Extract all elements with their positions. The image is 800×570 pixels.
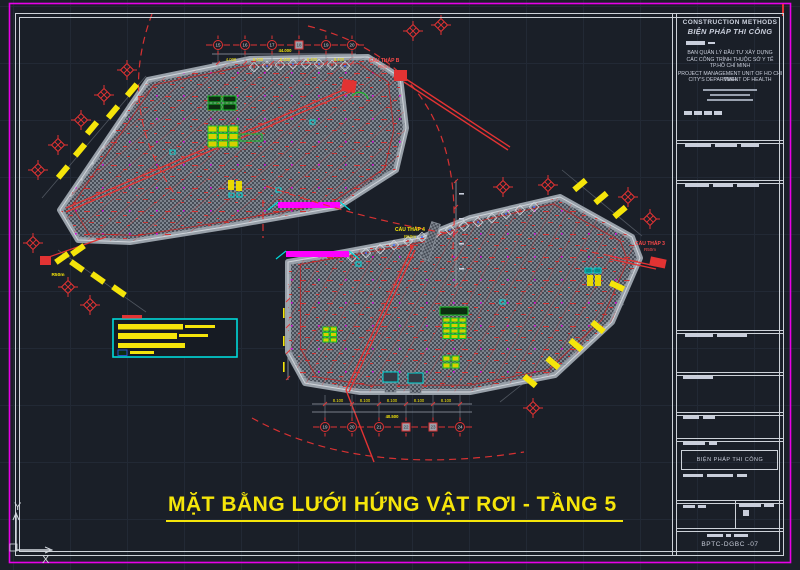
titleblock-divider [677, 528, 783, 532]
lower-building-slab [288, 197, 640, 462]
address-text-bar [707, 99, 753, 101]
svg-text:8.100: 8.100 [333, 398, 344, 403]
svg-text:15: 15 [215, 43, 221, 48]
titleblock-text-bar [707, 534, 723, 537]
upper-building-slab [60, 57, 406, 242]
logo-bar [708, 42, 715, 44]
svg-text:8.400: 8.400 [253, 57, 264, 62]
svg-text:20: 20 [349, 425, 355, 430]
company-name-vi: BIỆN PHÁP THI CÔNG [677, 27, 783, 36]
address-text-bar [703, 89, 757, 91]
svg-text:8.100: 8.100 [387, 398, 398, 403]
titleblock-text-bar [685, 144, 711, 147]
grid-dimensions-top: 4.000 8.400 8.400 8.400 8.400 44.000 15 … [206, 36, 364, 67]
owner-line: CÁC CÔNG TRÌNH THUỘC SỞ Y TẾ [677, 57, 783, 63]
svg-text:44.000: 44.000 [279, 48, 292, 53]
titleblock-text-bar [713, 184, 733, 187]
titleblock-text-bar [764, 504, 774, 507]
owner-line: CITY'S DEPARTMENT OF HEALTH [677, 77, 783, 83]
titleblock-text-bar [741, 144, 759, 147]
titleblock-cell-divider [735, 500, 736, 528]
svg-text:40.500: 40.500 [386, 414, 399, 419]
svg-text:16: 16 [242, 43, 248, 48]
svg-text:19: 19 [323, 43, 329, 48]
ucs-x-label: X [42, 554, 50, 566]
titleblock-text-bar [715, 144, 737, 147]
drawing-canvas[interactable]: CẨU THÁP B R50m CẨU THÁP 4 R50m CẨU THÁP… [0, 0, 800, 570]
titleblock-text-bar [683, 474, 703, 477]
svg-text:8.400: 8.400 [280, 57, 291, 62]
svg-text:8.400: 8.400 [307, 57, 318, 62]
drawing-number: BPTC-DGBC -07 [677, 541, 783, 548]
ucs-y-label: Y [14, 501, 22, 513]
svg-text:8.100: 8.100 [360, 398, 371, 403]
titleblock-text-bar [709, 442, 717, 445]
titleblock-text-bar [707, 474, 733, 477]
stamp-bar [684, 111, 692, 115]
crane-4-label: CẨU THÁP 4 [395, 226, 425, 233]
crane-3-label: CẨU THÁP 3 [635, 240, 665, 247]
svg-text:R50m: R50m [378, 64, 390, 69]
grid-dimensions-bottom: 8.100 8.100 8.100 8.100 8.100 40.500 19 … [312, 395, 472, 437]
stamp-bar [694, 111, 702, 115]
titleblock-text-bar [726, 534, 731, 537]
titleblock-text-bar [737, 474, 747, 477]
drawing-title: MẶT BẰNG LƯỚI HỨNG VẬT RƠI - TẦNG 5 [166, 493, 623, 522]
svg-text:19: 19 [322, 425, 328, 430]
titleblock-text-bar [685, 334, 713, 337]
crane-b-label: CẨU THÁP B [369, 57, 400, 64]
titleblock-text-bar [683, 416, 699, 419]
crane-base-upper [341, 79, 357, 93]
titleblock-text-bar [685, 184, 709, 187]
titleblock-text-bar [737, 184, 759, 187]
titleblock-text-bar [743, 510, 749, 516]
svg-text:R50m: R50m [404, 234, 416, 239]
stage-label: BIỆN PHÁP THI CÔNG [677, 457, 783, 463]
titleblock-text-bar [683, 505, 695, 508]
company-name-en: CONSTRUCTION METHODS [677, 19, 783, 26]
titleblock-text-bar [683, 376, 713, 379]
svg-text:22: 22 [403, 425, 409, 430]
svg-text:18: 18 [296, 43, 302, 48]
svg-text:8.400: 8.400 [334, 57, 345, 62]
legend-title-bar [122, 315, 142, 319]
logo-bar [686, 41, 705, 45]
address-text-bar [710, 94, 750, 96]
titleblock-text-bar [734, 534, 748, 537]
svg-text:8.100: 8.100 [441, 398, 452, 403]
stamp-bar [714, 111, 722, 115]
svg-text:R50m: R50m [644, 247, 656, 252]
ucs-icon: Y X [10, 501, 52, 566]
titleblock-text-bar [717, 334, 747, 337]
svg-text:4.000: 4.000 [226, 57, 237, 62]
title-block: CONSTRUCTION METHODS BIỆN PHÁP THI CÔNG … [677, 14, 783, 555]
svg-text:17: 17 [269, 43, 275, 48]
owner-line: TP.HỒ CHÍ MINH [677, 63, 783, 69]
svg-text:20: 20 [349, 43, 355, 48]
stamp-bar [704, 111, 712, 115]
titleblock-text-bar [683, 442, 705, 445]
legend-box [113, 315, 237, 357]
titleblock-text-bar [739, 504, 761, 507]
svg-text:8.100: 8.100 [414, 398, 425, 403]
svg-text:23: 23 [430, 425, 436, 430]
owner-line: BAN QUẢN LÝ ĐẦU TƯ XÂY DỰNG [677, 50, 783, 56]
titleblock-text-bar [703, 416, 715, 419]
svg-text:24: 24 [457, 425, 463, 430]
titleblock-text-bar [698, 505, 706, 508]
crane-left-radius: R50m [51, 272, 64, 278]
svg-text:21: 21 [376, 425, 382, 430]
